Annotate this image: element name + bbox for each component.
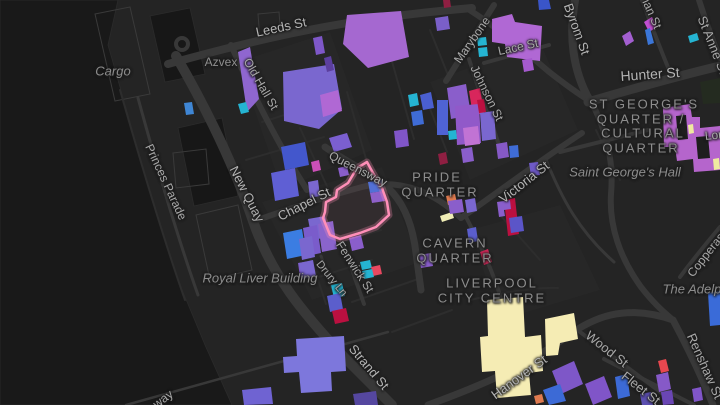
building-polygon[interactable] [308,180,320,198]
building-polygon[interactable] [435,16,450,31]
building-polygon[interactable] [281,142,309,170]
building-polygon[interactable] [461,147,474,163]
building-polygon[interactable] [478,47,488,57]
building-polygon[interactable] [640,392,653,405]
building-polygon[interactable] [708,291,720,326]
map-canvas[interactable]: Leeds StOld Hall StAzvexCargoMaryboneLac… [0,0,720,405]
building-polygon[interactable] [242,387,273,405]
building-polygon[interactable] [696,136,710,159]
building-polygon[interactable] [411,110,424,126]
building-polygon[interactable] [477,37,487,46]
building-polygon[interactable] [676,115,688,140]
building-polygon[interactable] [509,216,524,233]
map-render-surface [0,0,720,405]
building-polygon[interactable] [271,168,299,201]
park-polygon [700,78,720,104]
building-polygon[interactable] [509,145,519,158]
building-polygon[interactable] [522,58,534,72]
building-polygon[interactable] [437,100,448,135]
building-polygon[interactable] [299,260,316,279]
building-polygon[interactable] [496,142,509,159]
building-polygon[interactable] [338,166,349,177]
building-polygon[interactable] [713,158,720,170]
building-polygon[interactable] [688,124,694,134]
building-polygon[interactable] [465,198,477,213]
building-polygon[interactable] [443,0,451,8]
building-polygon[interactable] [661,390,674,405]
building-polygon[interactable] [448,199,464,214]
building-polygon[interactable] [463,126,480,146]
building-polygon[interactable] [394,129,409,148]
building-polygon[interactable] [538,0,551,10]
building-polygon[interactable] [480,111,496,141]
building-polygon[interactable] [448,130,457,140]
building-polygon[interactable] [419,253,433,268]
